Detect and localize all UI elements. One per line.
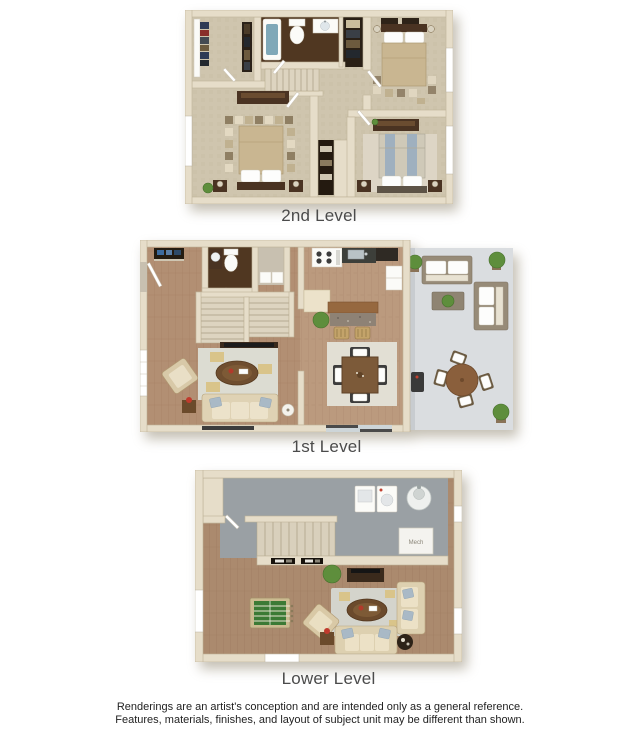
wall-art-icon — [402, 18, 419, 24]
lower-level-floorplan-image: Mech — [195, 470, 462, 662]
floorplan-lower-level: Mech — [195, 470, 462, 686]
entry-closet — [154, 248, 184, 261]
bathroom-vanity-sink — [313, 19, 338, 33]
dryer — [377, 486, 397, 512]
disclaimer-line-2: Features, materials, finishes, and layou… — [115, 714, 524, 726]
tv-console — [347, 568, 384, 582]
coffee-table — [216, 361, 258, 385]
red-lamp — [324, 628, 330, 634]
mech-label: Mech — [409, 540, 424, 546]
dining-area — [327, 342, 397, 406]
patio-loveseat — [474, 282, 508, 330]
floorplan-first-level: 1st Level — [140, 240, 513, 456]
mechanical-closet: Mech — [399, 528, 433, 554]
disclaimer-text: Renderings are an artist's conception an… — [0, 701, 640, 727]
sofa — [335, 626, 397, 654]
stairs-to-first-level — [257, 520, 335, 556]
grill — [411, 372, 424, 392]
level-label-lower: Lower Level — [195, 669, 462, 689]
counter-appliance — [376, 248, 398, 261]
egress-window — [454, 608, 462, 634]
patio-coffee-table — [432, 292, 464, 310]
kitchen-sink-counter — [342, 248, 376, 263]
level-label-1st: 1st Level — [140, 437, 513, 457]
disclaimer-line-1: Renderings are an artist's conception an… — [117, 701, 523, 713]
bar-stool — [334, 327, 349, 339]
toilet — [224, 249, 238, 272]
egress-window — [454, 506, 462, 522]
first-level-floorplan-image — [140, 240, 513, 432]
nightstand — [213, 180, 227, 192]
nightstand-lamp — [374, 26, 381, 33]
potted-plant-icon — [323, 565, 341, 583]
floorplan-page: 2nd Level — [0, 0, 640, 740]
dresser — [372, 119, 419, 131]
sofa — [202, 394, 278, 422]
nightstand — [428, 180, 442, 192]
potted-plant-icon — [313, 312, 329, 328]
foosball-table — [250, 598, 293, 628]
stove — [312, 248, 342, 267]
loveseat — [397, 582, 425, 634]
window-behind-sofa — [202, 426, 254, 430]
kitchen-island — [328, 302, 378, 326]
coffee-table — [347, 599, 387, 621]
nightstand — [357, 180, 371, 192]
front-door-opening — [140, 262, 147, 292]
level-label-2nd: 2nd Level — [185, 206, 453, 226]
round-side-table — [397, 634, 413, 650]
closet-shelf — [194, 19, 200, 77]
refrigerator — [386, 266, 402, 290]
sliding-glass-door — [326, 425, 392, 432]
linen-closet-shelves — [320, 146, 332, 180]
patio — [408, 248, 513, 430]
counter-return — [304, 290, 330, 312]
nightstand — [289, 180, 303, 192]
wall-art-icon — [381, 18, 398, 24]
egress-window — [265, 654, 299, 662]
red-lamp — [186, 397, 192, 403]
toilet — [289, 19, 305, 44]
window — [140, 350, 147, 396]
hall-closet — [258, 247, 284, 285]
vanity-sink — [209, 249, 222, 269]
floorplan-second-level: 2nd Level — [185, 10, 453, 226]
washer — [355, 486, 375, 512]
patio-sofa — [422, 256, 472, 284]
egress-window — [195, 590, 203, 632]
potted-plant-icon — [203, 183, 213, 193]
nightstand-lamp — [428, 26, 435, 33]
bar-stool — [355, 327, 370, 339]
dresser — [237, 91, 289, 104]
second-level-floorplan-image — [185, 10, 453, 204]
